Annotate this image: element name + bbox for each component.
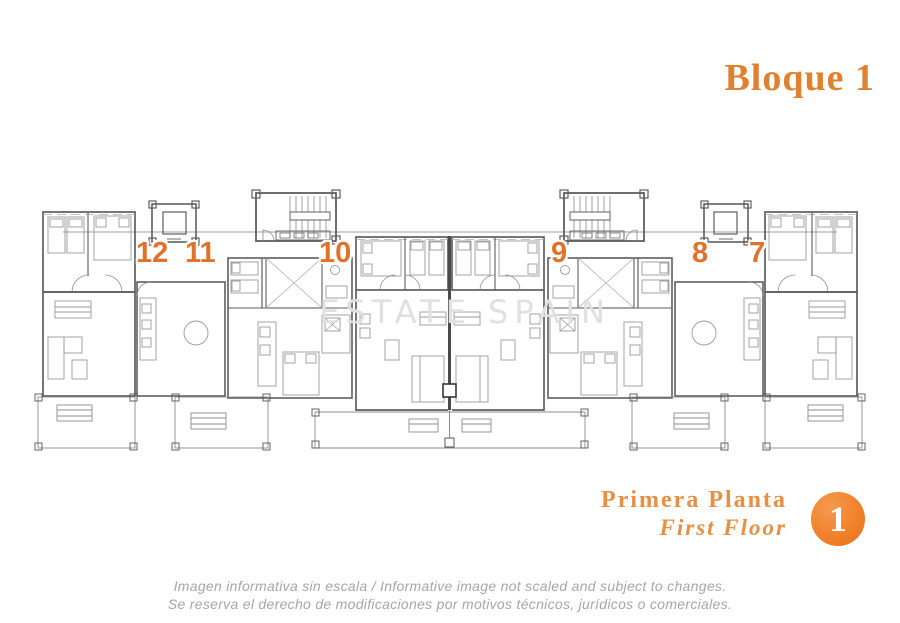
- unit-number-9: 9: [551, 239, 567, 268]
- central-divider: [443, 236, 456, 448]
- unit-number-8: 8: [692, 239, 708, 268]
- unit-number-10: 10: [319, 239, 351, 268]
- floor-label-english: First Floor: [601, 514, 787, 542]
- watermark: ESTATE SPAIN: [319, 293, 611, 331]
- central-unit-bedrooms: [356, 237, 448, 290]
- corner-bedrooms: [43, 212, 135, 292]
- floor-number: 1: [829, 501, 847, 537]
- disclaimer-line-1: Imagen informativa sin escala / Informat…: [0, 577, 900, 595]
- block-title: Bloque 1: [724, 56, 875, 100]
- page: Bloque 1 12 11 10 9 8 7 ESTATE SPAIN Pri…: [0, 0, 900, 623]
- middle-kitchen-block: [137, 282, 225, 396]
- floor-label-spanish: Primera Planta: [601, 486, 787, 514]
- unit-number-12: 12: [136, 239, 168, 268]
- disclaimer-line-2: Se reserva el derecho de modificaciones …: [0, 595, 900, 613]
- floor-number-badge: 1: [811, 492, 865, 546]
- floor-label: Primera Planta First Floor: [601, 486, 787, 542]
- unit-number-11: 11: [185, 239, 216, 268]
- disclaimer: Imagen informativa sin escala / Informat…: [0, 577, 900, 613]
- unit-number-7: 7: [749, 239, 765, 268]
- terraces: [35, 394, 450, 450]
- stair-tower-icon: [252, 190, 340, 244]
- corner-living-room: [43, 292, 135, 396]
